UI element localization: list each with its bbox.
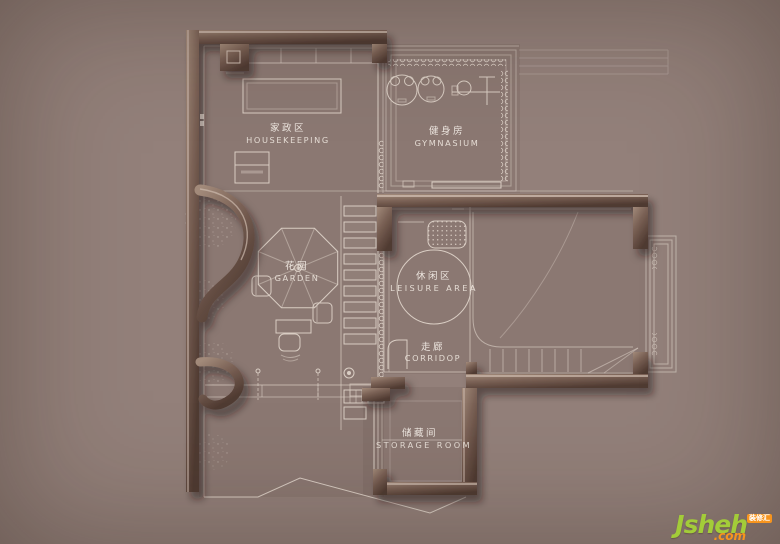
label-garden-zh: 花园 bbox=[285, 260, 309, 272]
label-housekeeping-zh: 家政区 bbox=[270, 122, 306, 134]
label-leisure-en: LEISURE AREA bbox=[390, 283, 478, 293]
wall-storage-botleft bbox=[373, 469, 387, 495]
eaves-lines bbox=[519, 50, 668, 74]
floor-plan: 家政区 HOUSEKEEPING 健身房 GYMNASIUM 花园 GARDEN… bbox=[0, 0, 780, 544]
label-storage-zh: 储藏间 bbox=[402, 427, 438, 439]
label-gymnasium-zh: 健身房 bbox=[429, 125, 465, 137]
wall-top-stub bbox=[372, 44, 387, 63]
wall-niche bbox=[220, 44, 249, 71]
label-leisure-zh: 休闲区 bbox=[416, 270, 452, 282]
wall-right-top-stub bbox=[633, 207, 648, 249]
label-gymnasium-en: GYMNASIUM bbox=[415, 138, 480, 148]
terrace-lines bbox=[646, 236, 676, 372]
watermark: Jsheh装修汇 .com bbox=[642, 512, 772, 542]
plant-texture bbox=[194, 434, 230, 470]
wall-storage-topleft bbox=[362, 388, 390, 401]
label-housekeeping-en: HOUSEKEEPING bbox=[246, 135, 330, 145]
label-garden-en: GARDEN bbox=[275, 273, 320, 283]
wall-right-bottom-stub bbox=[633, 352, 648, 375]
floor-plan-canvas: 家政区 HOUSEKEEPING 健身房 GYMNASIUM 花园 GARDEN… bbox=[0, 0, 780, 544]
label-storage-en: STORAGE ROOM bbox=[376, 440, 472, 450]
label-corridor-en: CORRIDOP bbox=[405, 353, 461, 363]
wall-junction bbox=[371, 377, 405, 389]
watermark-badge: 装修汇 bbox=[747, 514, 772, 523]
label-corridor-zh: 走廊 bbox=[421, 341, 445, 353]
wall-middle-left-stub bbox=[377, 207, 392, 251]
